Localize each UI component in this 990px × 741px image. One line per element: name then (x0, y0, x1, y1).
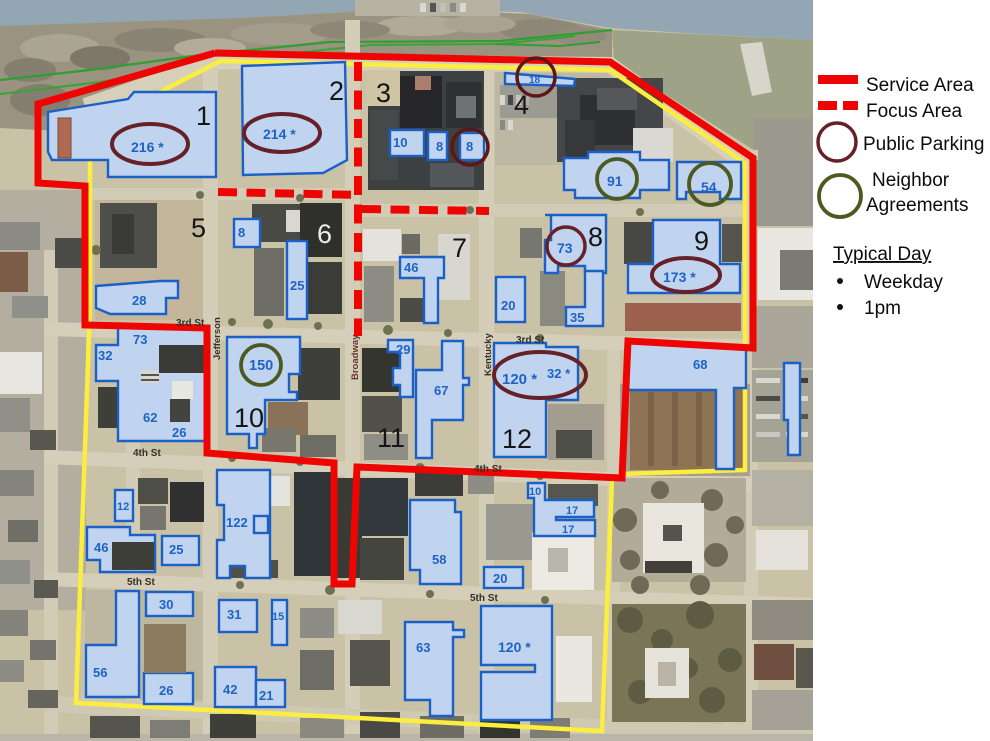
svg-text:8: 8 (466, 139, 473, 154)
svg-text:11: 11 (377, 423, 405, 453)
svg-text:3rd St: 3rd St (176, 318, 205, 329)
svg-text:8: 8 (588, 222, 603, 252)
svg-text:3: 3 (376, 78, 391, 108)
svg-text:120 *: 120 * (498, 639, 531, 655)
svg-text:56: 56 (93, 665, 107, 680)
svg-text:18: 18 (529, 75, 541, 86)
svg-text:73: 73 (133, 332, 147, 347)
svg-text:1: 1 (196, 101, 211, 131)
svg-text:10: 10 (529, 486, 541, 498)
svg-text:Broadway: Broadway (350, 334, 361, 380)
svg-text:10: 10 (393, 135, 407, 150)
svg-text:20: 20 (493, 571, 507, 586)
svg-text:173 *: 173 * (663, 269, 696, 285)
svg-text:7: 7 (452, 233, 467, 263)
svg-text:17: 17 (566, 505, 578, 517)
svg-text:15: 15 (272, 611, 284, 623)
svg-text:4th St: 4th St (474, 464, 502, 475)
svg-text:67: 67 (434, 383, 448, 398)
svg-text:Service Area: Service Area (866, 75, 974, 96)
svg-text:12: 12 (502, 424, 532, 454)
svg-text:25: 25 (290, 278, 304, 293)
svg-text:63: 63 (416, 640, 430, 655)
svg-text:6: 6 (317, 219, 332, 249)
svg-text:Weekday: Weekday (864, 272, 943, 293)
svg-text:Public Parking: Public Parking (863, 134, 984, 155)
svg-text:Agreements: Agreements (866, 195, 968, 216)
svg-text:5th St: 5th St (470, 593, 498, 604)
svg-text:58: 58 (432, 552, 446, 567)
svg-text:1pm: 1pm (864, 298, 901, 319)
svg-text:21: 21 (259, 688, 273, 703)
svg-text:32: 32 (98, 348, 112, 363)
svg-text:46: 46 (404, 260, 418, 275)
svg-text:54: 54 (701, 179, 717, 195)
svg-text:5th St: 5th St (127, 577, 155, 588)
svg-text:20: 20 (501, 298, 515, 313)
svg-text:35: 35 (570, 310, 584, 325)
svg-text:Jefferson: Jefferson (212, 317, 223, 360)
svg-text:120 *: 120 * (502, 371, 537, 388)
svg-text:68: 68 (693, 357, 707, 372)
svg-text:28: 28 (132, 293, 146, 308)
svg-text:26: 26 (172, 425, 186, 440)
svg-text:32 *: 32 * (547, 366, 571, 381)
svg-text:8: 8 (238, 225, 245, 240)
svg-text:26: 26 (159, 683, 173, 698)
svg-text:29: 29 (396, 342, 410, 357)
svg-text:Typical Day: Typical Day (833, 244, 932, 265)
svg-text:46: 46 (94, 540, 108, 555)
svg-text:3rd St: 3rd St (516, 335, 545, 346)
svg-text:17: 17 (562, 524, 574, 536)
svg-text:25: 25 (169, 542, 183, 557)
svg-text:Focus Area: Focus Area (866, 101, 963, 122)
svg-text:42: 42 (223, 682, 237, 697)
svg-text:91: 91 (607, 173, 623, 189)
svg-text:10: 10 (234, 403, 264, 433)
svg-text:Kentucky: Kentucky (483, 333, 494, 376)
svg-text:62: 62 (143, 410, 157, 425)
svg-text:73: 73 (557, 240, 573, 256)
svg-text:122: 122 (226, 515, 248, 530)
svg-text:4: 4 (514, 90, 529, 120)
svg-text:150: 150 (249, 358, 273, 374)
svg-text:8: 8 (436, 139, 443, 154)
svg-text:4th St: 4th St (133, 448, 161, 459)
svg-text:214 *: 214 * (263, 126, 296, 142)
svg-text:5: 5 (191, 213, 206, 243)
svg-text:216 *: 216 * (131, 139, 164, 155)
svg-text:2: 2 (329, 76, 344, 106)
svg-text:31: 31 (227, 607, 241, 622)
svg-text:Neighbor: Neighbor (872, 170, 950, 191)
svg-text:30: 30 (159, 597, 173, 612)
svg-text:9: 9 (694, 226, 709, 256)
svg-text:12: 12 (117, 501, 129, 513)
